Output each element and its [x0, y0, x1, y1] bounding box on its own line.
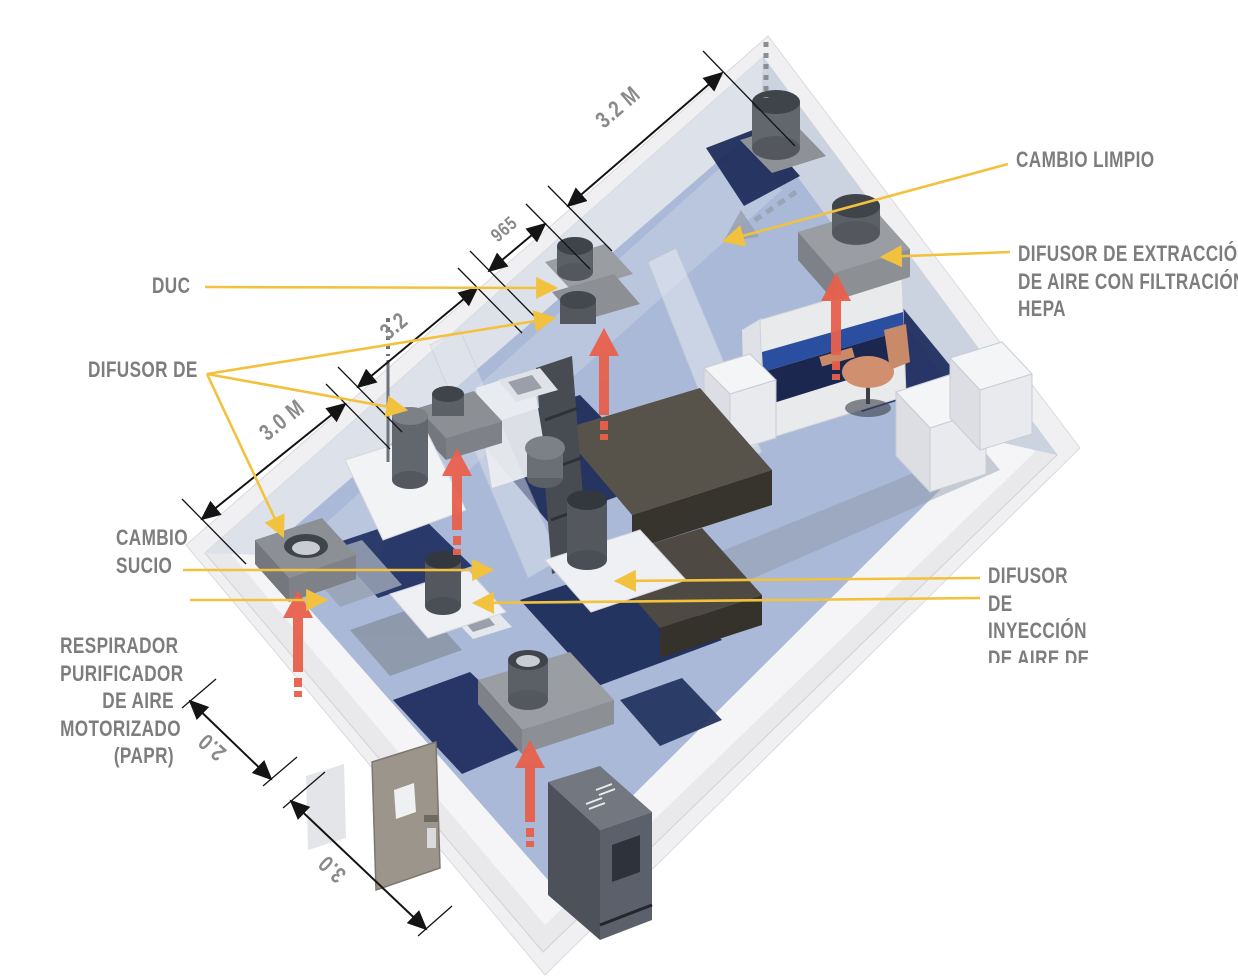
label-line: DE [988, 590, 1089, 618]
label-cambio-sucio: CAMBIO SUCIO [116, 524, 188, 579]
label-cambio-limpio: CAMBIO LIMPIO [1016, 146, 1155, 174]
label-line: (PAPR) [60, 742, 174, 770]
label-difusor-de: DIFUSOR DE [88, 356, 198, 384]
label-line: CAMBIO [116, 524, 188, 552]
label-line: DE AIRE DE [988, 645, 1089, 664]
label-difusor-inyeccion: DIFUSOR DE INYECCIÓN DE AIRE DE [988, 562, 1089, 663]
label-line: DE AIRE [60, 687, 174, 715]
label-line: PURIFICADOR [60, 660, 174, 688]
label-line: RESPIRADOR [60, 632, 174, 660]
screenshot-canvas: CAMBIO LIMPIO DIFUSOR DE EXTRACCIÓN DE A… [0, 0, 1238, 976]
label-line: SUCIO [116, 552, 188, 580]
label-difusor-extraccion: DIFUSOR DE EXTRACCIÓN DE AIRE CON FILTRA… [1018, 240, 1238, 323]
label-line: HEPA [1018, 295, 1238, 323]
label-line: DIFUSOR DE EXTRACCIÓN [1018, 240, 1238, 268]
label-difusor-inyeccion-clip: DIFUSOR DE INYECCIÓN DE AIRE DE [985, 560, 1185, 663]
label-line: DIFUSOR [988, 562, 1089, 590]
leader-duc [205, 287, 556, 288]
label-line: MOTORIZADO [60, 715, 174, 743]
label-line: DE AIRE CON FILTRACIÓN [1018, 268, 1238, 296]
label-line: INYECCIÓN [988, 617, 1089, 645]
label-respirador-papr: RESPIRADOR PURIFICADOR DE AIRE MOTORIZAD… [60, 632, 174, 770]
label-duc: DUC [152, 272, 190, 300]
